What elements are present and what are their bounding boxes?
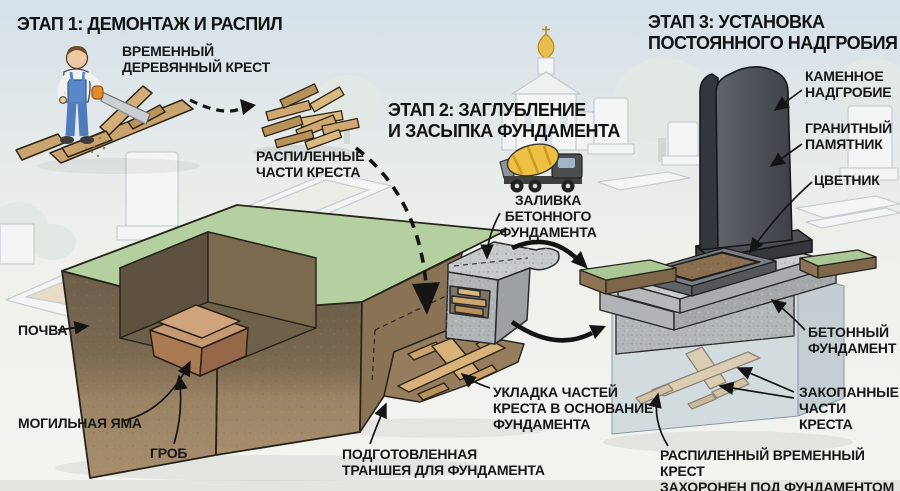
stage1-title: ЭТАП 1: ДЕМОНТАЖ И РАСПИЛ [17, 14, 282, 35]
label-temporary-cross: ВРЕМЕННЫЙ ДЕРЕВЯННЫЙ КРЕСТ [122, 43, 270, 75]
stage3-title: ЭТАП 3: УСТАНОВКА ПОСТОЯННОГО НАДГРОБИЯ [648, 12, 897, 53]
label-concrete-foundation: БЕТОННЫЙ ФУНДАМЕНТ [808, 324, 896, 356]
label-sawn-parts: РАСПИЛЕННЫЕ ЧАСТИ КРЕСТА [256, 148, 364, 180]
label-buried-parts: ЗАКОПАННЫЕ ЧАСТИ КРЕСТА [799, 384, 900, 433]
label-laying: УКЛАДКА ЧАСТЕЙ КРЕСТА В ОСНОВАНИЕ ФУНДАМ… [493, 384, 653, 433]
stage2-title: ЭТАП 2: ЗАГЛУБЛЕНИЕ И ЗАСЫПКА ФУНДАМЕНТА [388, 100, 620, 141]
label-grave-pit: МОГИЛЬНАЯ ЯМА [18, 415, 142, 431]
label-soil: ПОЧВА [18, 322, 67, 338]
label-stone-tombstone: КАМЕННОЕ НАДГРОБИЕ [805, 68, 891, 100]
boards-in-concrete [450, 286, 490, 318]
label-concrete-pour: ЗАЛИВКА БЕТОННОГО ФУНДАМЕНТА [492, 192, 604, 241]
label-coffin: ГРОБ [150, 445, 187, 461]
label-buried-note: РАСПИЛЕННЫЙ ВРЕМЕННЫЙ КРЕСТ ЗАХОРОНЕН ПО… [660, 447, 900, 491]
label-trench: ПОДГОТОВЛЕННАЯ ТРАНШЕЯ ДЛЯ ФУНДАМЕНТА [342, 446, 545, 478]
label-granite-monument: ГРАНИТНЫЙ ПАМЯТНИК [805, 120, 892, 152]
label-flower-garden: ЦВЕТНИК [814, 172, 880, 188]
infographic-canvas: ЭТАП 1: ДЕМОНТАЖ И РАСПИЛ ВРЕМЕННЫЙ ДЕРЕ… [0, 0, 900, 491]
